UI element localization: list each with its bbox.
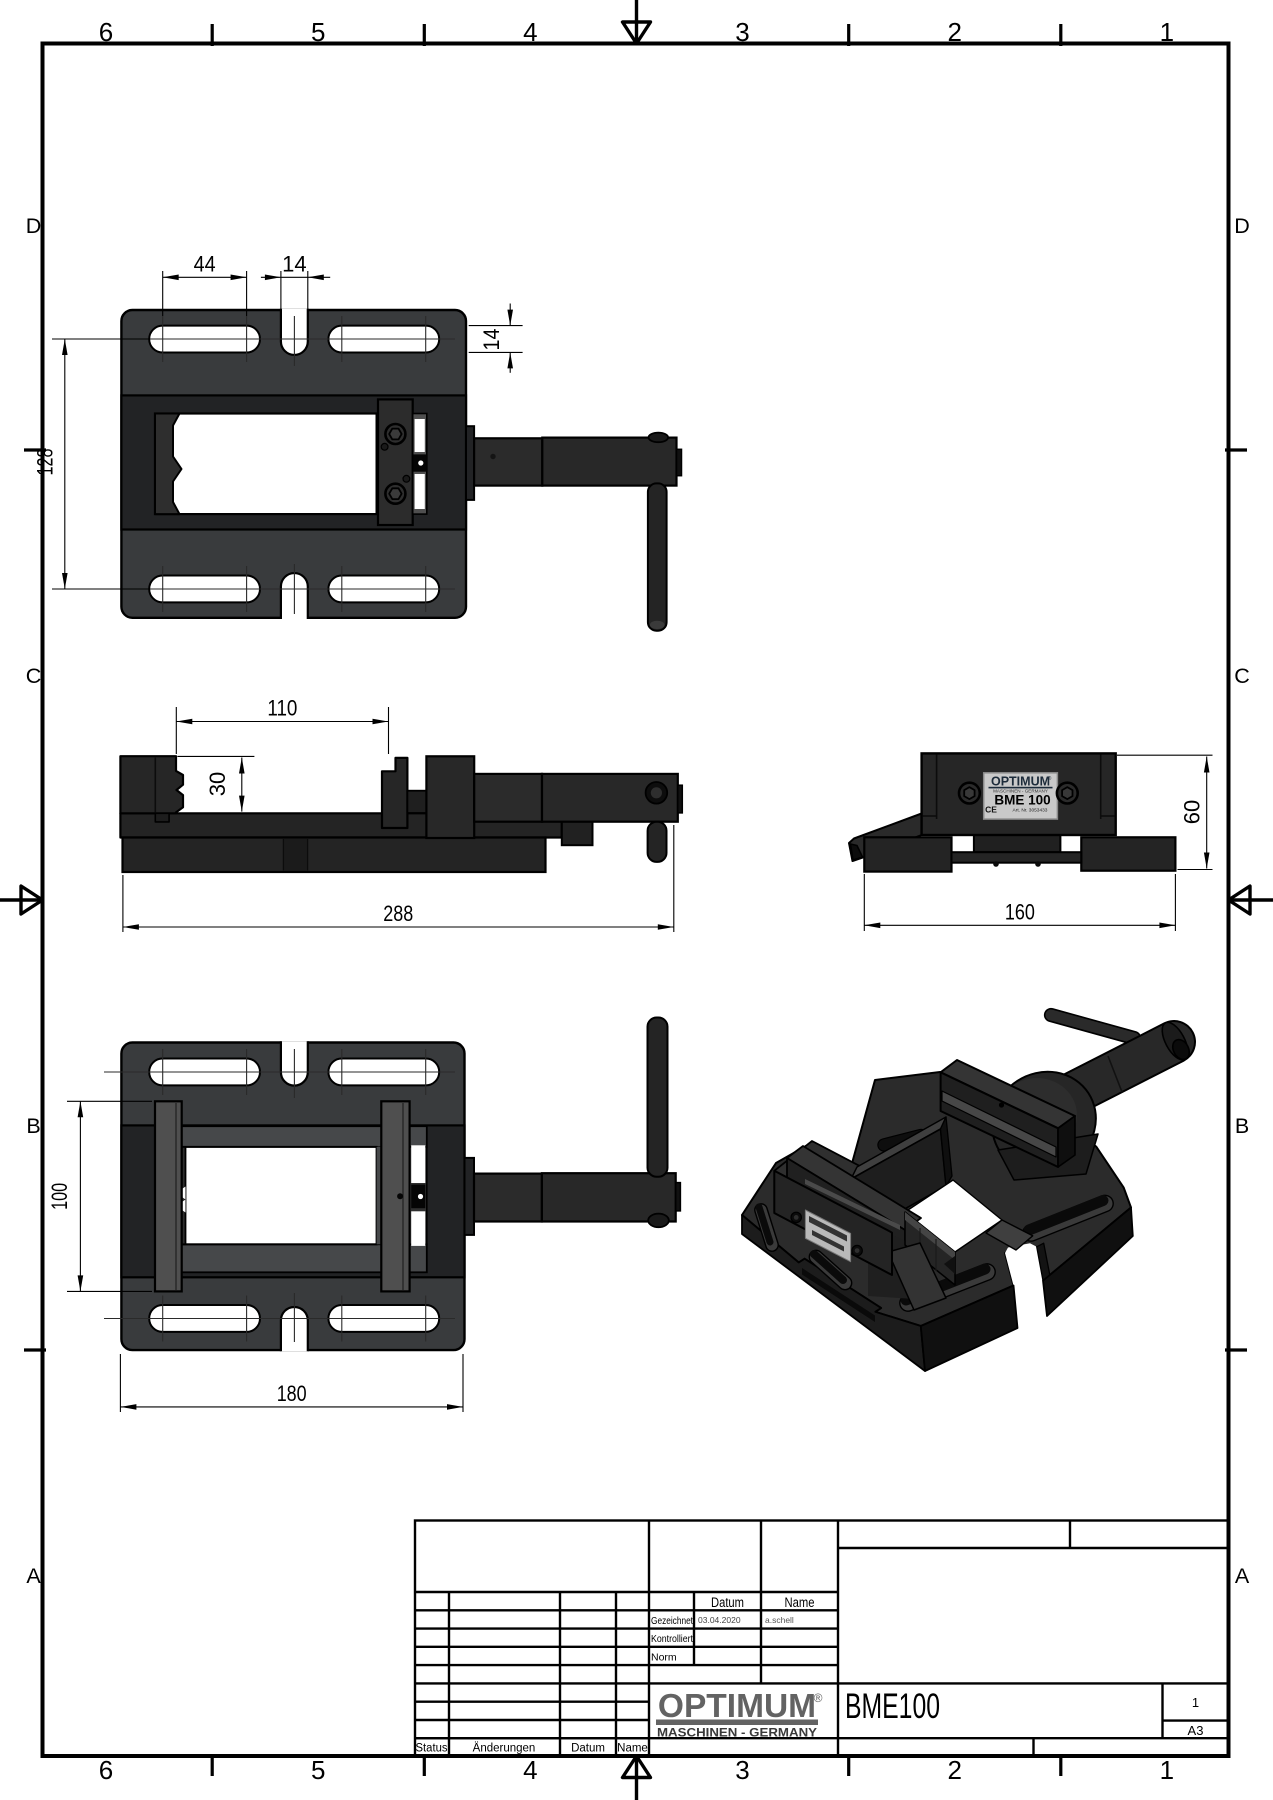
svg-text:®: ® bbox=[1048, 775, 1052, 782]
svg-text:6: 6 bbox=[99, 1755, 113, 1785]
svg-text:2: 2 bbox=[947, 17, 961, 47]
svg-text:MASCHINEN - GERMANY: MASCHINEN - GERMANY bbox=[657, 1728, 817, 1740]
svg-text:3: 3 bbox=[735, 1755, 749, 1785]
svg-text:®: ® bbox=[814, 1691, 823, 1705]
svg-text:14: 14 bbox=[282, 251, 306, 276]
svg-text:5: 5 bbox=[311, 1755, 325, 1785]
svg-text:160: 160 bbox=[1005, 899, 1035, 924]
svg-text:30: 30 bbox=[205, 772, 230, 796]
svg-text:OPTIMUM: OPTIMUM bbox=[991, 775, 1050, 789]
svg-text:4: 4 bbox=[523, 17, 537, 47]
svg-text:4: 4 bbox=[523, 1755, 537, 1785]
svg-text:D: D bbox=[26, 214, 42, 238]
svg-text:Gezeichnet: Gezeichnet bbox=[651, 1615, 693, 1627]
svg-text:Name: Name bbox=[617, 1743, 648, 1755]
svg-text:Datum: Datum bbox=[571, 1743, 605, 1755]
svg-text:128: 128 bbox=[33, 449, 58, 476]
svg-text:B: B bbox=[26, 1114, 40, 1138]
svg-text:Art. Nr. 3053433: Art. Nr. 3053433 bbox=[1013, 808, 1048, 814]
svg-text:B: B bbox=[1235, 1114, 1249, 1138]
svg-text:100: 100 bbox=[47, 1183, 72, 1210]
svg-text:OPTIMUM: OPTIMUM bbox=[658, 1688, 816, 1725]
svg-text:3: 3 bbox=[735, 17, 749, 47]
svg-text:A: A bbox=[26, 1564, 41, 1588]
svg-text:C: C bbox=[26, 664, 42, 688]
svg-text:1: 1 bbox=[1192, 1695, 1199, 1710]
svg-text:5: 5 bbox=[311, 17, 325, 47]
svg-text:288: 288 bbox=[383, 901, 413, 926]
svg-text:Änderungen: Änderungen bbox=[473, 1743, 536, 1755]
svg-text:Datum: Datum bbox=[711, 1595, 744, 1610]
svg-text:Kontrolliert: Kontrolliert bbox=[651, 1633, 693, 1645]
svg-text:BME 100: BME 100 bbox=[994, 793, 1050, 808]
svg-text:44: 44 bbox=[194, 251, 216, 276]
svg-text:03.04.2020: 03.04.2020 bbox=[698, 1615, 741, 1625]
svg-text:1: 1 bbox=[1160, 1755, 1174, 1785]
svg-text:Name: Name bbox=[785, 1595, 815, 1610]
svg-text:BME100: BME100 bbox=[845, 1687, 940, 1726]
svg-text:C: C bbox=[1234, 664, 1250, 688]
svg-text:a.schell: a.schell bbox=[765, 1615, 794, 1625]
svg-text:Status: Status bbox=[416, 1743, 448, 1755]
svg-text:Norm: Norm bbox=[651, 1651, 677, 1663]
svg-text:14: 14 bbox=[479, 329, 504, 351]
svg-text:2: 2 bbox=[947, 1755, 961, 1785]
svg-text:180: 180 bbox=[277, 1381, 307, 1406]
svg-text:A: A bbox=[1235, 1564, 1250, 1588]
svg-text:60: 60 bbox=[1180, 800, 1205, 824]
svg-text:1: 1 bbox=[1160, 17, 1174, 47]
svg-text:CE: CE bbox=[985, 805, 997, 815]
svg-text:110: 110 bbox=[267, 696, 297, 721]
svg-text:6: 6 bbox=[99, 17, 113, 47]
svg-text:A3: A3 bbox=[1188, 1723, 1204, 1738]
svg-text:D: D bbox=[1234, 214, 1250, 238]
